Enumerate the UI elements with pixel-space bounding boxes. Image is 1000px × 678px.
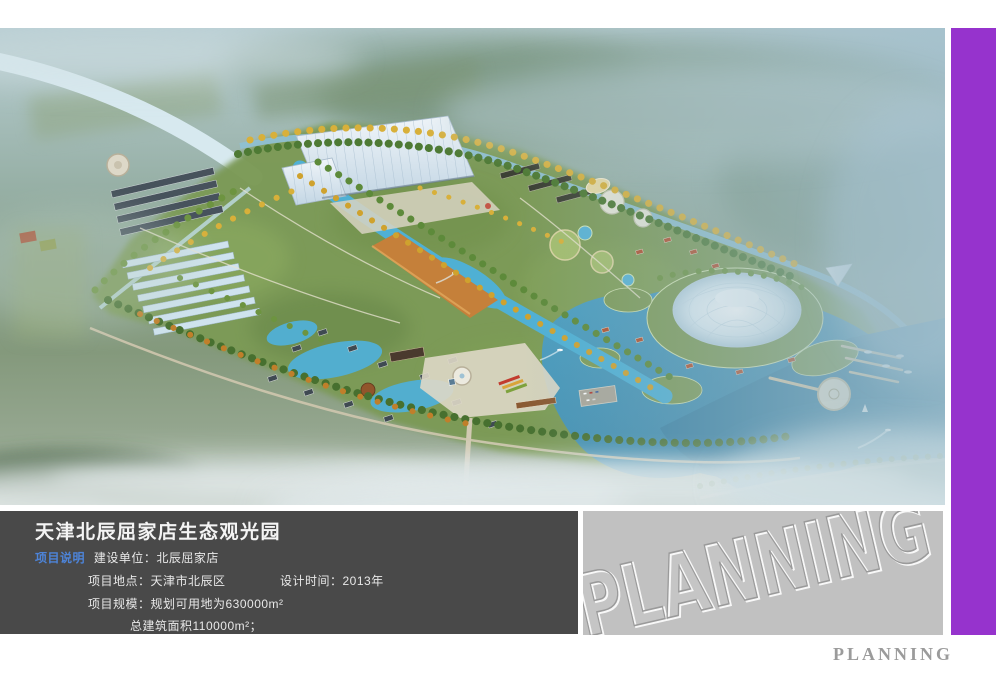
section-label: 项目说明: [35, 551, 85, 565]
aerial-rendering: [0, 28, 945, 505]
aerial-rendering-svg: [0, 28, 945, 505]
project-scale: 项目规模：规划可用地为630000m²: [88, 595, 284, 612]
watermark-svg: PLANNING PLANNING: [583, 511, 943, 635]
floor-area: 总建筑面积110000m²；: [130, 617, 262, 634]
watermark-text: PLANNING: [583, 511, 939, 635]
watermark-panel: PLANNING PLANNING: [583, 511, 943, 635]
purple-accent-bar: [951, 28, 996, 635]
info-row-construction: 项目说明 建设单位：北辰屈家店: [35, 549, 219, 566]
project-info-panel: 天津北辰屈家店生态观光园 项目说明 建设单位：北辰屈家店 项目地点：天津市北辰区…: [0, 511, 578, 634]
project-location: 项目地点：天津市北辰区: [88, 572, 226, 589]
construction-unit-value: 建设单位：北辰屈家店: [94, 551, 219, 565]
planning-footer-text: PLANNING: [833, 644, 953, 665]
presentation-board: 天津北辰屈家店生态观光园 项目说明 建设单位：北辰屈家店 项目地点：天津市北辰区…: [0, 0, 1000, 678]
project-title: 天津北辰屈家店生态观光园: [35, 517, 281, 544]
design-time: 设计时间：2013年: [280, 572, 384, 589]
